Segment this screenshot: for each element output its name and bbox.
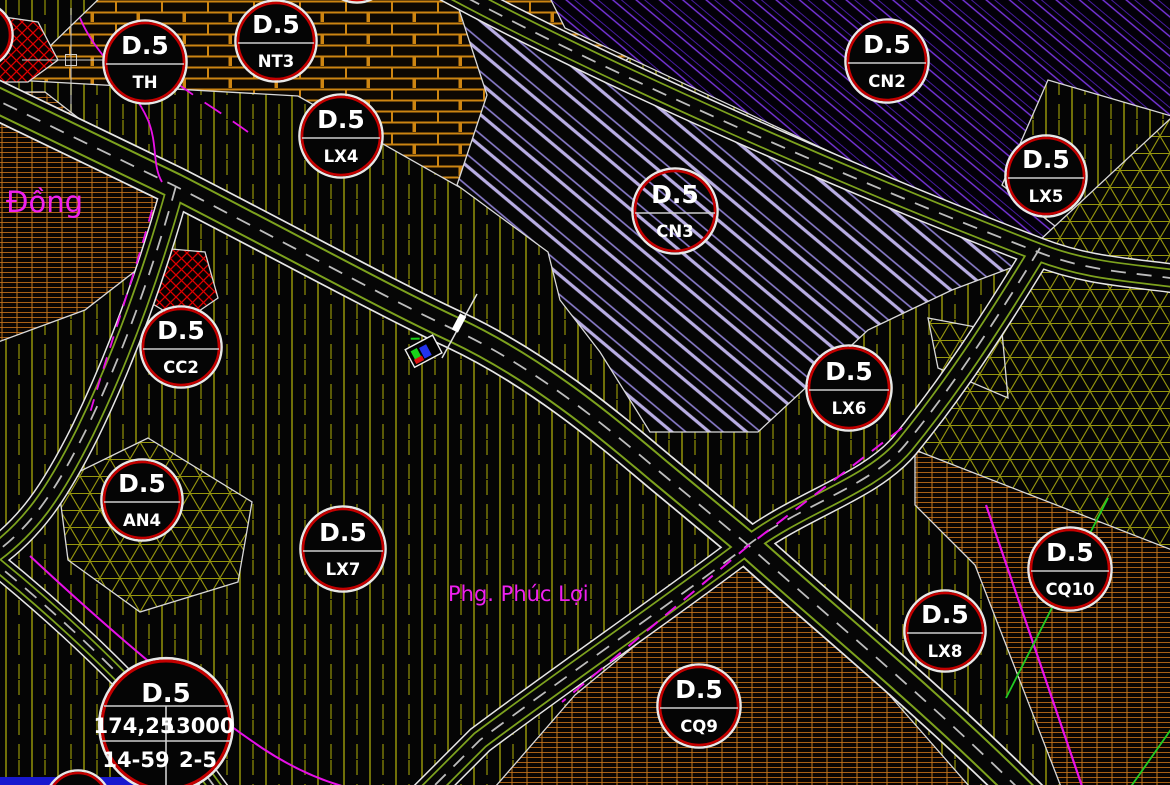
svg-text:CC2: CC2 [163,358,199,377]
svg-text:AN4: AN4 [123,511,161,530]
svg-text:D.5: D.5 [1046,538,1094,567]
svg-text:D.5: D.5 [651,180,699,209]
svg-text:D.5: D.5 [252,10,300,39]
svg-text:LX7: LX7 [326,560,361,579]
svg-text:D.5: D.5 [675,675,723,704]
zone-label-CC2: D.5CC2 [140,306,221,387]
zone-label-LX7: D.5LX7 [300,506,385,591]
svg-text:2-5: 2-5 [179,748,217,772]
svg-text:LX8: LX8 [928,642,963,661]
svg-text:LX6: LX6 [832,399,867,418]
svg-text:D.5: D.5 [317,105,365,134]
zone-label-LX4: D.5LX4 [299,94,382,177]
svg-text:14-59: 14-59 [102,748,169,772]
svg-text:D.5: D.5 [118,469,166,498]
svg-text:NT3: NT3 [258,52,295,71]
cad-viewport[interactable]: D.5THD.5NT3D.5LX4D.5CN2D.5LX5D.5CN3D.5CC… [0,0,1170,785]
svg-text:LX4: LX4 [324,147,359,166]
zone-label-TH: D.5TH [103,20,186,103]
svg-text:D.5: D.5 [825,357,873,386]
svg-text:CQ9: CQ9 [680,717,718,736]
svg-text:D.5: D.5 [141,679,191,709]
zone-label-LX6: D.5LX6 [806,345,891,430]
zone-label-CQ10: D.5CQ10 [1028,527,1111,610]
zone-label-LX8: D.5LX8 [904,590,985,671]
place-label-1: Phg. Phúc Lợi [448,582,589,606]
zone-label-CN2: D.5CN2 [845,19,928,102]
svg-text:D.5: D.5 [319,518,367,547]
svg-text:D.5: D.5 [921,600,969,629]
svg-text:LX5: LX5 [1029,187,1064,206]
svg-text:CN3: CN3 [656,222,693,241]
svg-text:13000: 13000 [161,714,234,738]
svg-text:CN2: CN2 [868,72,905,91]
svg-text:D.5: D.5 [121,31,169,60]
svg-text:TH: TH [132,73,157,92]
svg-text:CQ10: CQ10 [1045,580,1094,599]
svg-text:D.5: D.5 [863,30,911,59]
zone-label-AN4: D.5AN4 [101,459,182,540]
zone-label-CQ9: D.5CQ9 [657,664,740,747]
zone-label-NT3: D.5NT3 [235,0,316,81]
svg-text:D.5: D.5 [157,316,205,345]
cad-canvas[interactable]: D.5THD.5NT3D.5LX4D.5CN2D.5LX5D.5CN3D.5CC… [0,0,1170,785]
zone-label-LX5: D.5LX5 [1005,135,1086,216]
svg-text:D.5: D.5 [1022,145,1070,174]
place-label-0: Đồng [6,185,83,219]
